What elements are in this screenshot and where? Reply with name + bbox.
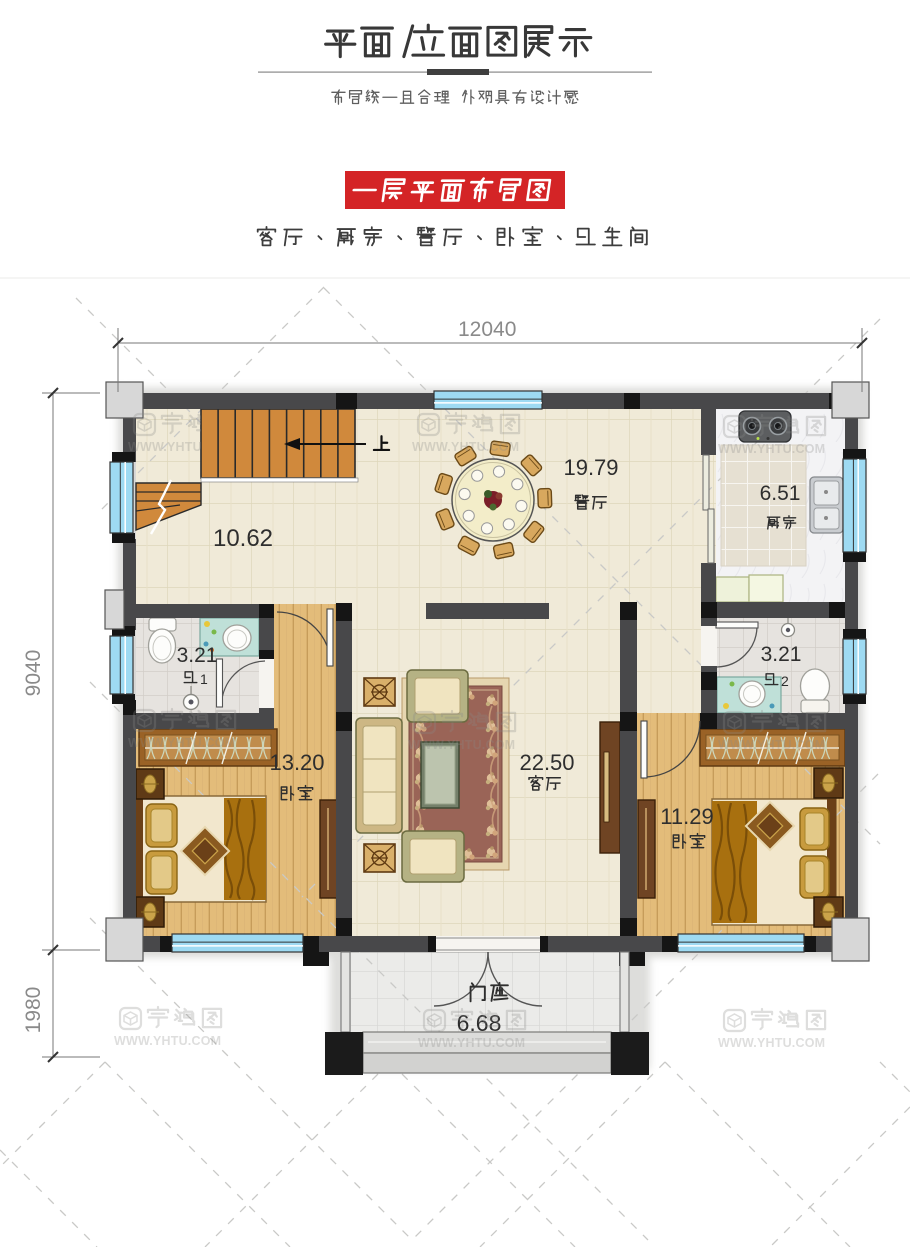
svg-text:12040: 12040: [458, 318, 516, 341]
svg-text:10.62: 10.62: [213, 525, 273, 552]
svg-text:22.50: 22.50: [519, 750, 574, 775]
svg-text:WWW.YHTU.COM: WWW.YHTU.COM: [418, 1036, 525, 1050]
svg-text:3.21: 3.21: [177, 644, 218, 667]
svg-text:3.21: 3.21: [761, 643, 802, 666]
svg-text:13.20: 13.20: [269, 750, 324, 775]
svg-text:WWW.YHTU.COM: WWW.YHTU.COM: [718, 1036, 825, 1050]
svg-text:WWW.YHTU.COM: WWW.YHTU.COM: [718, 442, 825, 456]
svg-text:1980: 1980: [22, 987, 45, 1034]
svg-text:WWW.YHTU.COM: WWW.YHTU.COM: [718, 738, 825, 752]
svg-text:11.29: 11.29: [660, 804, 713, 829]
svg-text:WWW.YHTU.COM: WWW.YHTU.COM: [114, 1034, 221, 1048]
svg-text:WWW.YHTU.COM: WWW.YHTU.COM: [412, 440, 519, 454]
svg-text:9040: 9040: [22, 650, 45, 697]
svg-text:6.51: 6.51: [760, 482, 801, 505]
svg-text:2: 2: [781, 673, 789, 689]
svg-text:19.79: 19.79: [563, 455, 618, 480]
svg-text:WWW.YHTU.COM: WWW.YHTU.COM: [408, 738, 515, 752]
svg-text:1: 1: [200, 671, 208, 687]
svg-text:WWW.YHTU.COM: WWW.YHTU.COM: [128, 736, 235, 750]
